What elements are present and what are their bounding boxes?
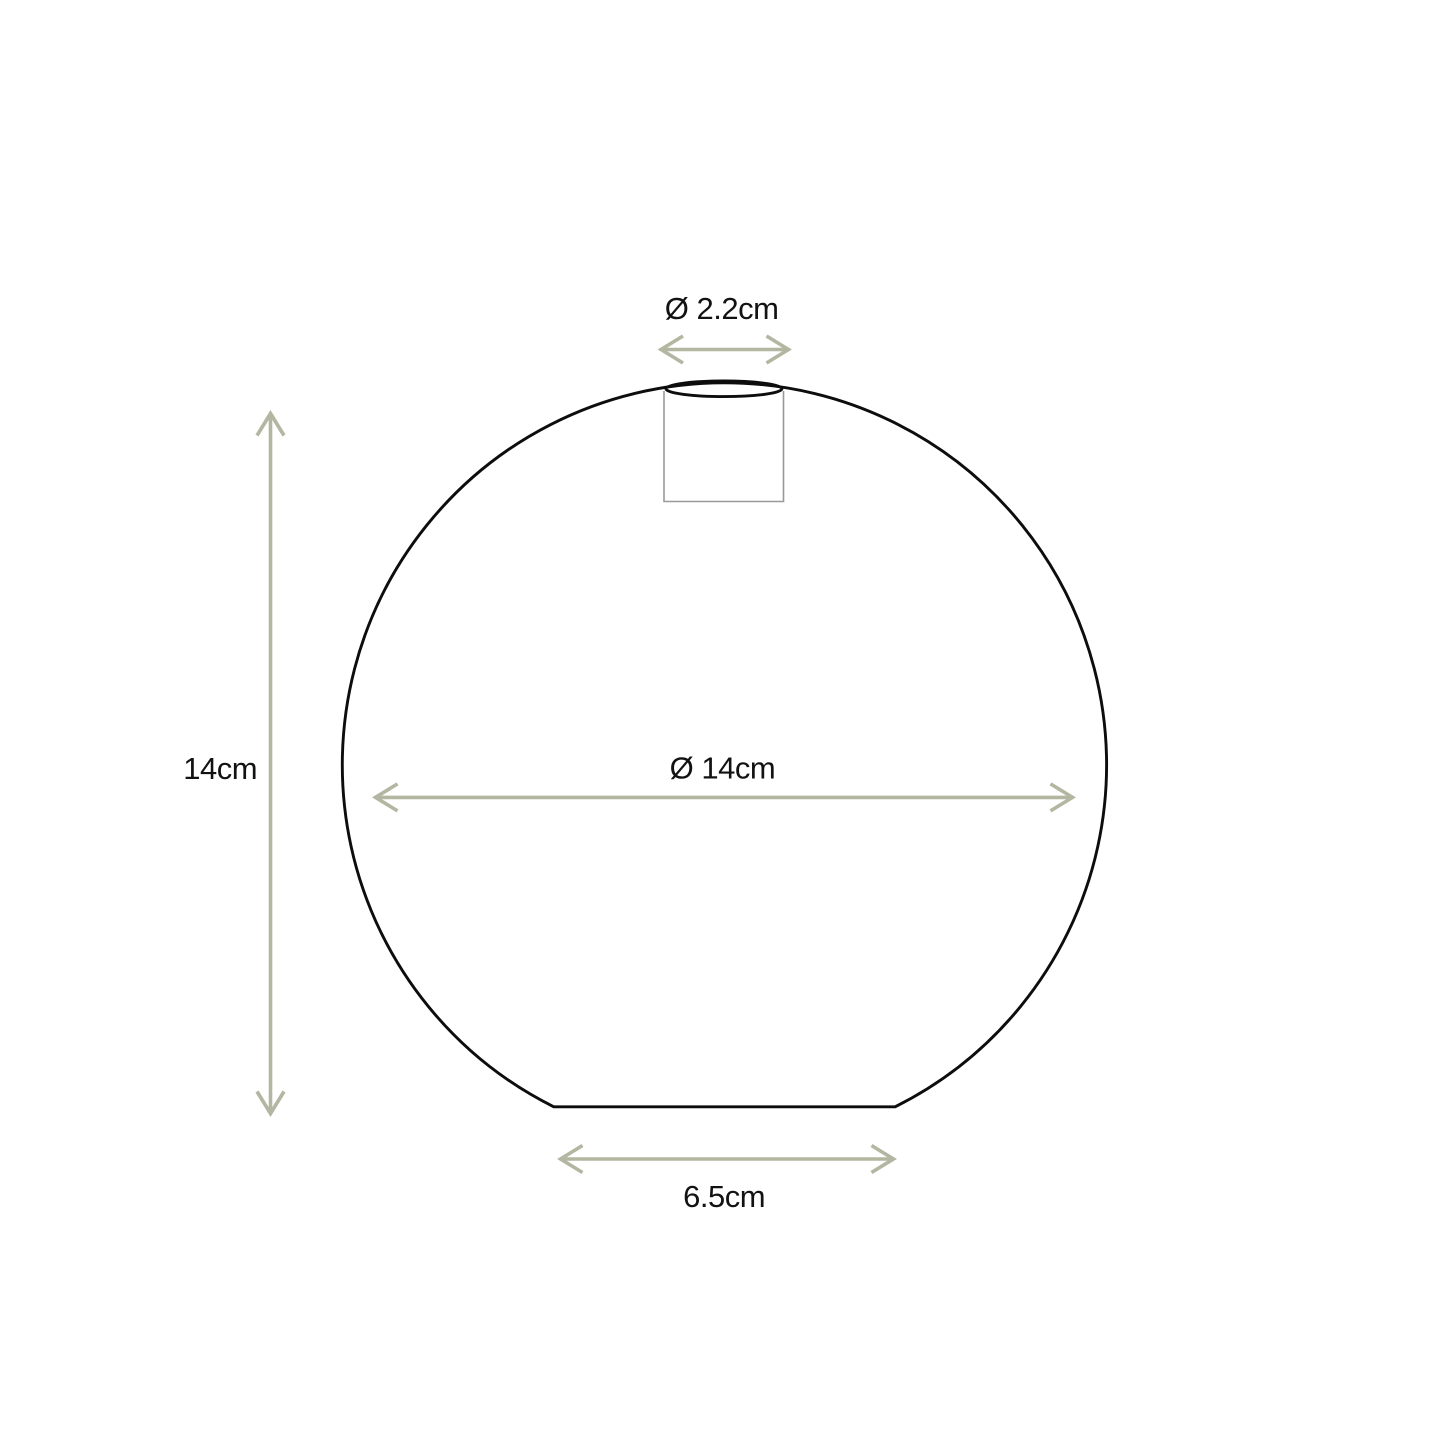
svg-text:14cm: 14cm [183,751,257,786]
svg-text:Ø 2.2cm: Ø 2.2cm [665,291,779,326]
svg-text:6.5cm: 6.5cm [683,1179,765,1214]
svg-text:Ø 14cm: Ø 14cm [670,750,776,785]
